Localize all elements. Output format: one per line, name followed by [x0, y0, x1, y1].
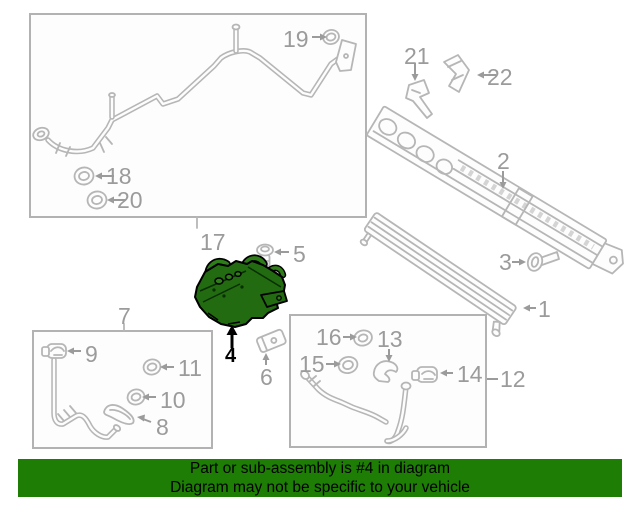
parts-diagram: 19 18 20 17 21 22 2 3 1 5 4 6 7 9 11 10 … — [0, 0, 640, 512]
banner-line2: Diagram may not be specific to your vehi… — [18, 479, 622, 498]
callout-17-label[interactable]: 17 — [200, 231, 226, 254]
callout-16-label[interactable]: 16 — [316, 326, 342, 349]
callout-6-label[interactable]: 6 — [260, 366, 273, 389]
part-3-bolt — [526, 251, 559, 272]
callout-1-label[interactable]: 1 — [538, 298, 551, 321]
diagram-artwork — [0, 0, 640, 512]
part-22-bracket — [444, 55, 469, 92]
callout-4-label[interactable]: 4 — [225, 346, 236, 366]
callout-11-label[interactable]: 11 — [178, 357, 202, 380]
part-21-bracket — [406, 80, 432, 118]
callout-5-label[interactable]: 5 — [293, 243, 306, 266]
box-assembly-17 — [30, 14, 366, 217]
callout-9-label[interactable]: 9 — [85, 343, 98, 366]
callout-14-label[interactable]: 14 — [457, 363, 483, 386]
banner-line1: Part or sub-assembly is #4 in diagram — [18, 460, 622, 479]
callout-7-label[interactable]: 7 — [118, 305, 131, 328]
part-6-bracket — [256, 329, 287, 353]
callout-20-label[interactable]: 20 — [117, 189, 143, 212]
highlight-banner: Part or sub-assembly is #4 in diagram Di… — [18, 459, 622, 497]
callout-13-label[interactable]: 13 — [377, 328, 403, 351]
part-9-clamp — [42, 344, 66, 358]
callout-21-label[interactable]: 21 — [404, 45, 430, 68]
callout-15-label[interactable]: 15 — [299, 353, 325, 376]
callout-10-label[interactable]: 10 — [160, 389, 186, 412]
callout-8-label[interactable]: 8 — [156, 416, 169, 439]
callout-3-label[interactable]: 3 — [499, 251, 512, 274]
callout-19-label[interactable]: 19 — [283, 28, 309, 51]
callout-18-label[interactable]: 18 — [106, 165, 132, 188]
callout-22-label[interactable]: 22 — [487, 66, 513, 89]
callout-2-label[interactable]: 2 — [497, 150, 510, 173]
callout-12-label[interactable]: 12 — [500, 368, 526, 391]
